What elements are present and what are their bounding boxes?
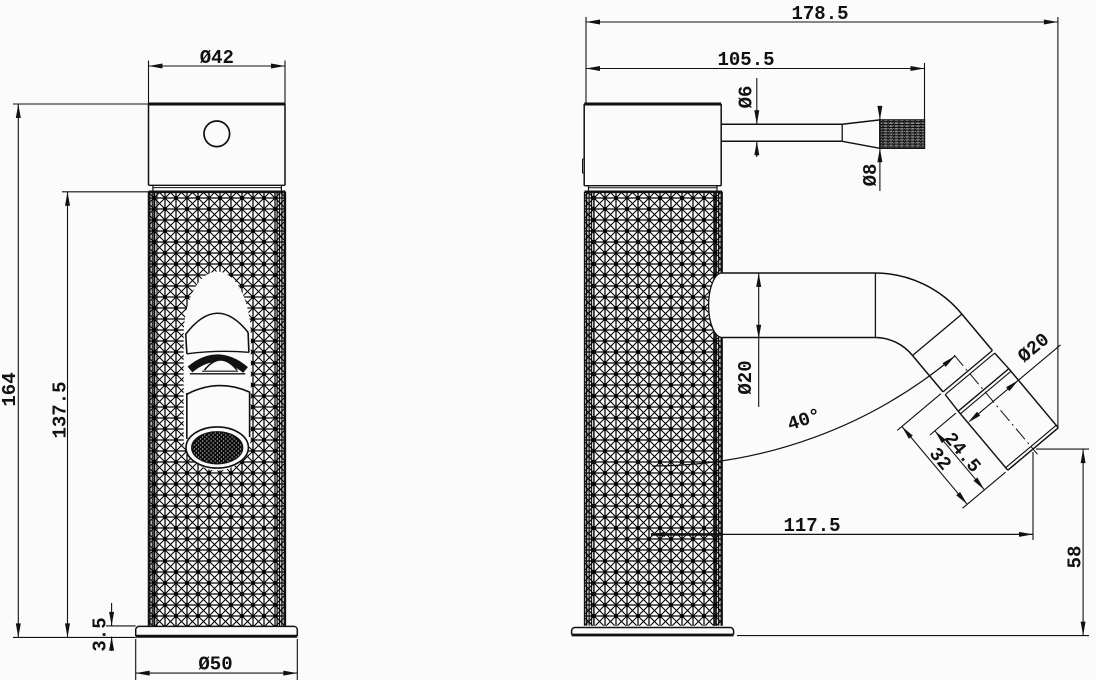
svg-text:Ø50: Ø50	[198, 654, 232, 676]
svg-text:164: 164	[0, 372, 21, 406]
svg-text:117.5: 117.5	[783, 515, 840, 537]
svg-text:58: 58	[1065, 546, 1087, 569]
svg-text:3.5: 3.5	[90, 617, 112, 651]
svg-text:Ø20: Ø20	[735, 360, 757, 394]
svg-text:178.5: 178.5	[791, 3, 848, 25]
svg-text:Ø6: Ø6	[736, 86, 758, 109]
svg-text:Ø8: Ø8	[860, 164, 882, 187]
svg-text:Ø42: Ø42	[200, 47, 234, 69]
svg-text:105.5: 105.5	[717, 49, 774, 71]
svg-text:137.5: 137.5	[50, 381, 72, 438]
